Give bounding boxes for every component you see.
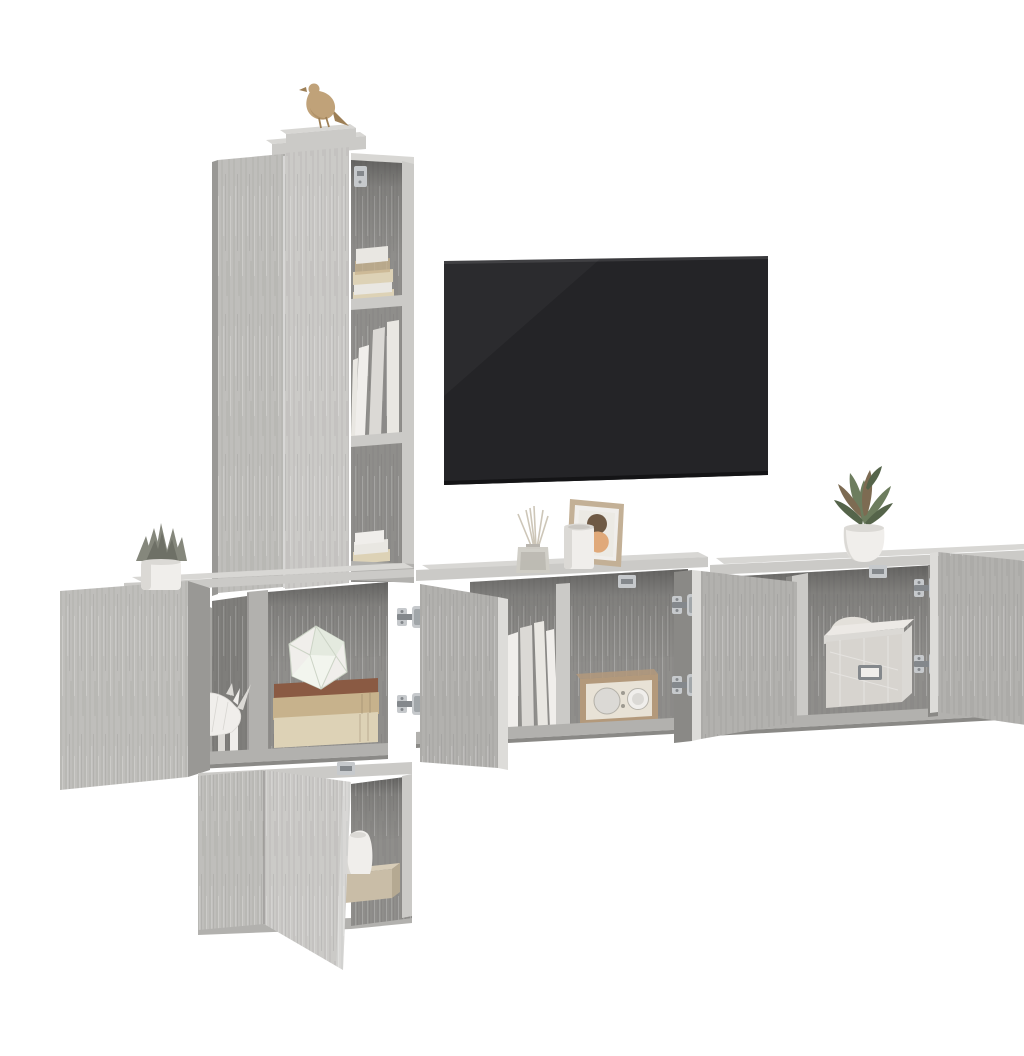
wall-mount-bracket-icon [354,166,367,187]
vintage-radio [576,669,658,725]
label-holder [858,665,882,680]
cabinet-side-edge [212,160,218,596]
hinge-icon [397,693,423,715]
center-wall-cabinet [397,499,797,770]
succulent-plant [136,523,187,590]
wall-mount-bracket-icon [869,565,887,578]
white-vase [564,524,594,569]
reed-diffuser [516,506,550,573]
product-photo [40,16,1024,1040]
column-right-frame [402,161,414,583]
wall-mount-bracket-icon [337,762,355,775]
left-door-edge [498,597,508,770]
media-wall-scene [40,16,1024,1040]
potted-plant [834,466,893,562]
right-door-edge [930,552,938,713]
white-binders [506,621,558,732]
storage-box [824,619,914,708]
folded-textile-stack [353,246,394,302]
tv [444,256,768,485]
door-edge [188,581,210,777]
book-stack [273,678,379,748]
gold-bird-figurine [299,84,349,129]
shelf-column [351,153,414,583]
wall-mount-bracket-icon [618,575,636,588]
right-frame [402,774,412,918]
bay-divider [247,590,268,760]
radio-speaker [594,688,620,714]
right-door-edge [692,570,701,741]
tall-cabinet [212,84,414,597]
center-divider [556,583,570,729]
bottom-wall-cabinet [198,762,412,970]
hinge-icon [397,606,423,628]
